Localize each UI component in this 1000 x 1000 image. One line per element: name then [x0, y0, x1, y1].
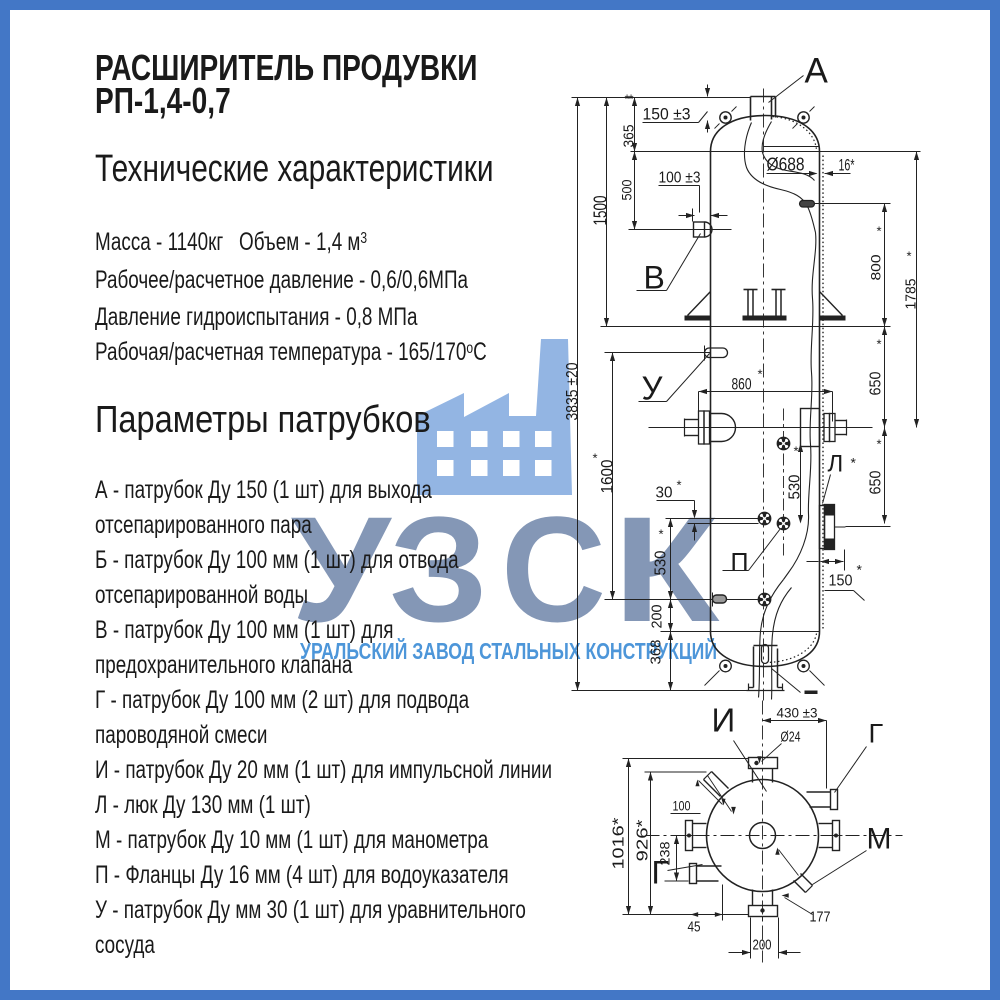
svg-text:*: *	[758, 367, 763, 382]
svg-text:150 ±3: 150 ±3	[643, 105, 691, 124]
svg-text:1500: 1500	[591, 196, 611, 226]
svg-text:430 ±3: 430 ±3	[777, 705, 818, 721]
svg-text:*: *	[877, 224, 882, 239]
svg-text:200: 200	[753, 937, 772, 954]
svg-text:860: 860	[732, 375, 752, 394]
svg-text:16*: 16*	[839, 156, 855, 175]
svg-text:45: 45	[688, 919, 701, 936]
svg-text:*: *	[794, 444, 799, 459]
svg-text:368: 368	[648, 640, 665, 665]
svg-text:*: *	[857, 562, 863, 578]
svg-text:100 ±3: 100 ±3	[659, 170, 701, 187]
svg-text:650: 650	[868, 470, 885, 494]
svg-text:У: У	[642, 370, 664, 407]
svg-text:Г: Г	[652, 855, 669, 891]
svg-text:365: 365	[621, 125, 638, 148]
svg-text:П: П	[731, 549, 749, 577]
svg-text:3835 ±20: 3835 ±20	[563, 363, 582, 421]
svg-text:*: *	[877, 437, 882, 452]
svg-text:926*: 926*	[635, 820, 652, 862]
svg-text:30: 30	[656, 485, 673, 502]
svg-text:*: *	[851, 455, 857, 471]
svg-text:*: *	[629, 92, 634, 107]
svg-text:И: И	[712, 702, 736, 739]
svg-text:*: *	[907, 249, 912, 264]
svg-text:530: 530	[653, 550, 670, 575]
svg-text:100: 100	[673, 798, 691, 814]
svg-text:530: 530	[787, 474, 804, 499]
svg-text:М: М	[867, 823, 892, 856]
svg-text:Г: Г	[869, 719, 884, 749]
svg-text:200: 200	[649, 605, 666, 629]
svg-text:Ø688: Ø688	[767, 155, 805, 175]
svg-text:177: 177	[810, 909, 831, 926]
svg-text:*: *	[659, 527, 664, 542]
svg-text:1016*: 1016*	[611, 818, 628, 870]
svg-text:*: *	[593, 451, 598, 466]
svg-text:Л: Л	[828, 451, 844, 478]
svg-text:А: А	[805, 52, 829, 91]
svg-text:500: 500	[619, 179, 635, 200]
svg-text:1785: 1785	[903, 279, 920, 310]
svg-text:650: 650	[868, 371, 885, 395]
svg-text:Ø24: Ø24	[781, 729, 801, 746]
svg-text:*: *	[877, 337, 882, 352]
svg-text:800: 800	[868, 254, 884, 280]
svg-text:1600: 1600	[598, 460, 617, 494]
svg-text:150: 150	[829, 573, 853, 590]
svg-text:*: *	[677, 478, 682, 493]
